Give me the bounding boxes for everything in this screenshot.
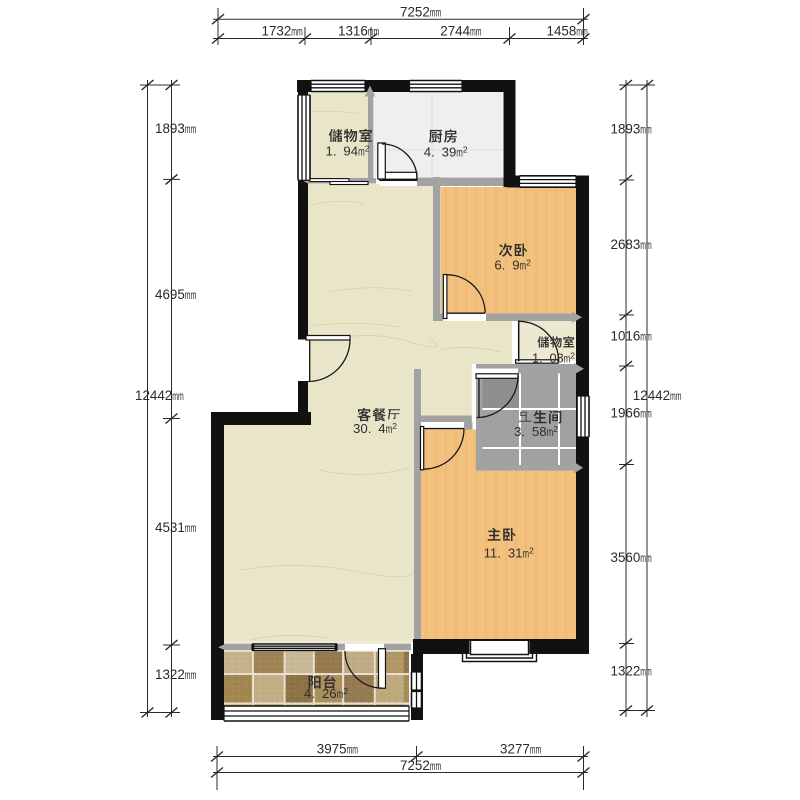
svg-text:1893mm: 1893mm (611, 122, 652, 137)
svg-text:1458mm: 1458mm (547, 23, 588, 38)
svg-text:4531mm: 4531mm (155, 520, 196, 535)
svg-text:1893mm: 1893mm (155, 121, 196, 136)
svg-text:1322mm: 1322mm (155, 667, 196, 682)
svg-text:1316mm: 1316mm (338, 23, 379, 38)
svg-text:7252mm: 7252mm (400, 758, 441, 773)
svg-text:1732mm: 1732mm (262, 23, 303, 38)
svg-text:4. 26m2: 4. 26m2 (304, 686, 348, 701)
svg-text:12442mm: 12442mm (633, 388, 682, 403)
svg-text:3. 58m2: 3. 58m2 (514, 424, 558, 439)
svg-text:1966mm: 1966mm (611, 406, 652, 421)
svg-text:1322mm: 1322mm (611, 664, 652, 679)
svg-text:30. 4m2: 30. 4m2 (353, 421, 397, 436)
svg-text:3560mm: 3560mm (611, 550, 652, 565)
svg-text:6. 9m2: 6. 9m2 (494, 258, 531, 273)
svg-text:3277mm: 3277mm (500, 742, 541, 757)
svg-text:1. 94m2: 1. 94m2 (326, 144, 370, 159)
svg-text:4. 39m2: 4. 39m2 (424, 145, 468, 160)
svg-text:4695mm: 4695mm (155, 287, 196, 302)
svg-text:2744mm: 2744mm (440, 23, 481, 38)
svg-text:1. 08m2: 1. 08m2 (532, 350, 575, 365)
svg-text:7252mm: 7252mm (400, 5, 441, 20)
svg-text:3975mm: 3975mm (317, 742, 358, 757)
svg-text:2683mm: 2683mm (611, 237, 652, 252)
svg-text:11. 31m2: 11. 31m2 (484, 546, 535, 561)
svg-text:12442mm: 12442mm (135, 388, 184, 403)
svg-text:1016mm: 1016mm (611, 329, 652, 344)
